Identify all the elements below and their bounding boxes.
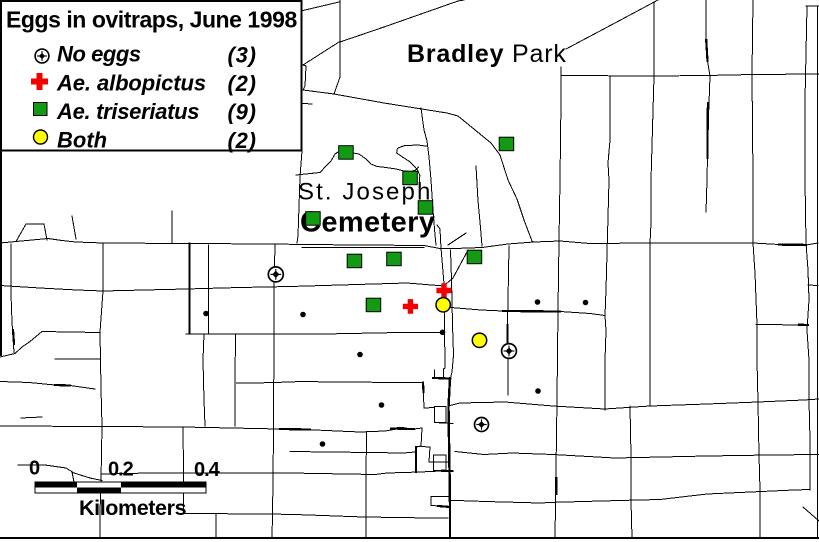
svg-text:Kilometers: Kilometers [79, 496, 187, 520]
svg-text:(2): (2) [228, 128, 257, 153]
svg-text:Both: Both [57, 128, 107, 153]
svg-text:Eggs in ovitraps, June 1998: Eggs in ovitraps, June 1998 [6, 7, 297, 33]
svg-text:Ae. triseriatus: Ae. triseriatus [56, 99, 199, 124]
svg-text:No eggs: No eggs [57, 42, 141, 67]
svg-text:(9): (9) [228, 100, 257, 125]
svg-text:(3): (3) [228, 43, 257, 68]
svg-text:Bradley Park: Bradley Park [407, 40, 567, 68]
svg-text:0.2: 0.2 [108, 459, 134, 481]
svg-text:0.4: 0.4 [194, 459, 221, 481]
svg-text:0: 0 [29, 458, 40, 480]
svg-text:Ae. albopictus: Ae. albopictus [56, 71, 206, 96]
svg-text:(2): (2) [228, 71, 257, 96]
